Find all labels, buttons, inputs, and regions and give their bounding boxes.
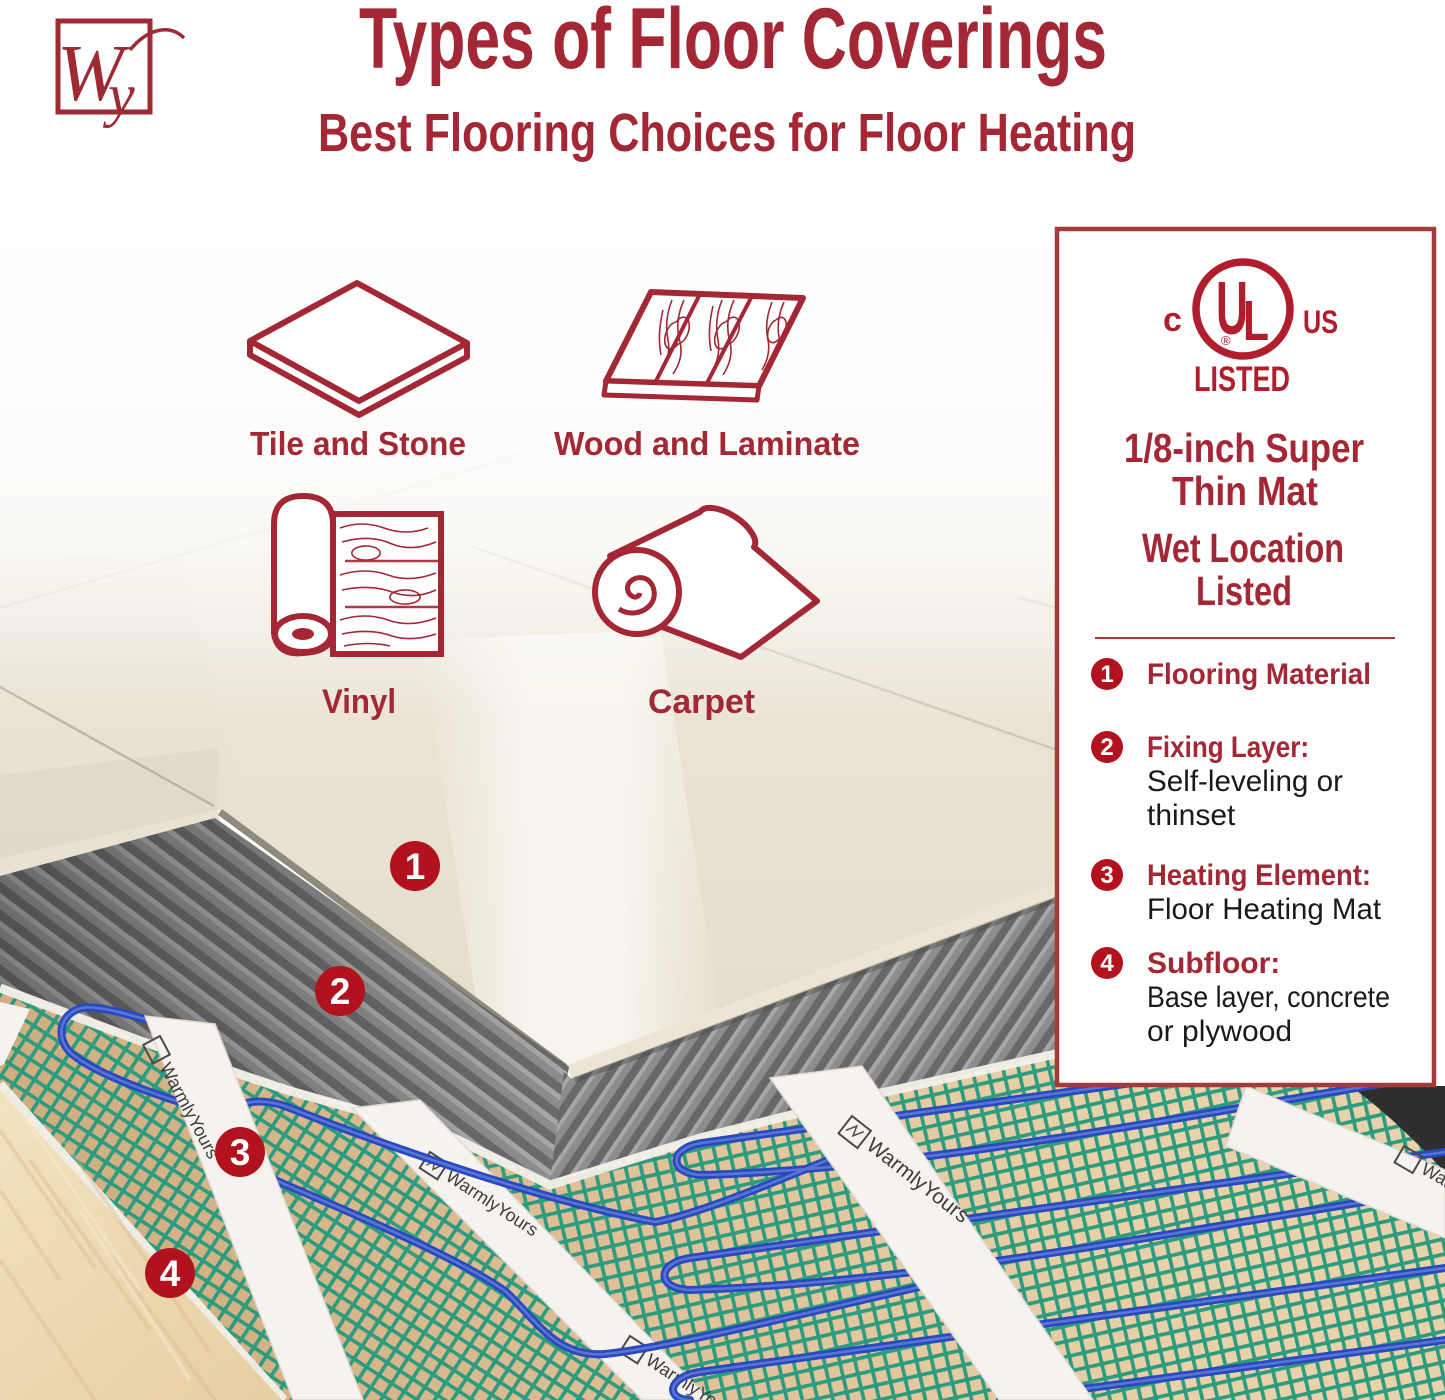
svg-text:Listed: Listed [1196, 568, 1292, 614]
svg-text:Thin Mat: Thin Mat [1172, 468, 1318, 514]
svg-text:2: 2 [1100, 734, 1113, 761]
svg-text:4: 4 [160, 1253, 181, 1294]
svg-text:Tile and Stone: Tile and Stone [250, 425, 466, 462]
svg-text:Best Flooring Choices for Floo: Best Flooring Choices for Floor Heating [318, 103, 1136, 163]
svg-text:1: 1 [1100, 661, 1113, 688]
svg-text:Heating Element:: Heating Element: [1147, 859, 1371, 892]
svg-text:®: ® [1221, 333, 1231, 348]
svg-text:LISTED: LISTED [1194, 360, 1290, 399]
svg-text:Fixing Layer:: Fixing Layer: [1147, 731, 1309, 764]
svg-text:3: 3 [1100, 862, 1113, 889]
svg-text:4: 4 [1100, 950, 1114, 977]
svg-text:Base layer, concrete: Base layer, concrete [1147, 981, 1390, 1014]
svg-text:Types of Floor Coverings: Types of Floor Coverings [359, 0, 1107, 87]
svg-text:3: 3 [230, 1132, 251, 1173]
svg-text:1: 1 [405, 846, 426, 887]
svg-text:thinset: thinset [1147, 799, 1236, 832]
svg-text:or plywood: or plywood [1147, 1015, 1292, 1048]
svg-text:Wet Location: Wet Location [1142, 525, 1344, 571]
svg-text:2: 2 [330, 971, 351, 1012]
svg-text:c: c [1163, 301, 1182, 339]
svg-text:Wood and Laminate: Wood and Laminate [554, 425, 860, 462]
svg-text:Flooring Material: Flooring Material [1147, 658, 1371, 691]
svg-text:US: US [1303, 304, 1338, 340]
svg-text:Subfloor:: Subfloor: [1147, 947, 1280, 980]
svg-text:L: L [1243, 289, 1269, 353]
svg-text:Vinyl: Vinyl [322, 683, 396, 721]
svg-text:Self-leveling or: Self-leveling or [1147, 765, 1343, 798]
svg-text:1/8-inch Super: 1/8-inch Super [1124, 425, 1364, 471]
svg-text:Floor Heating Mat: Floor Heating Mat [1147, 893, 1382, 926]
svg-text:Carpet: Carpet [648, 683, 755, 721]
